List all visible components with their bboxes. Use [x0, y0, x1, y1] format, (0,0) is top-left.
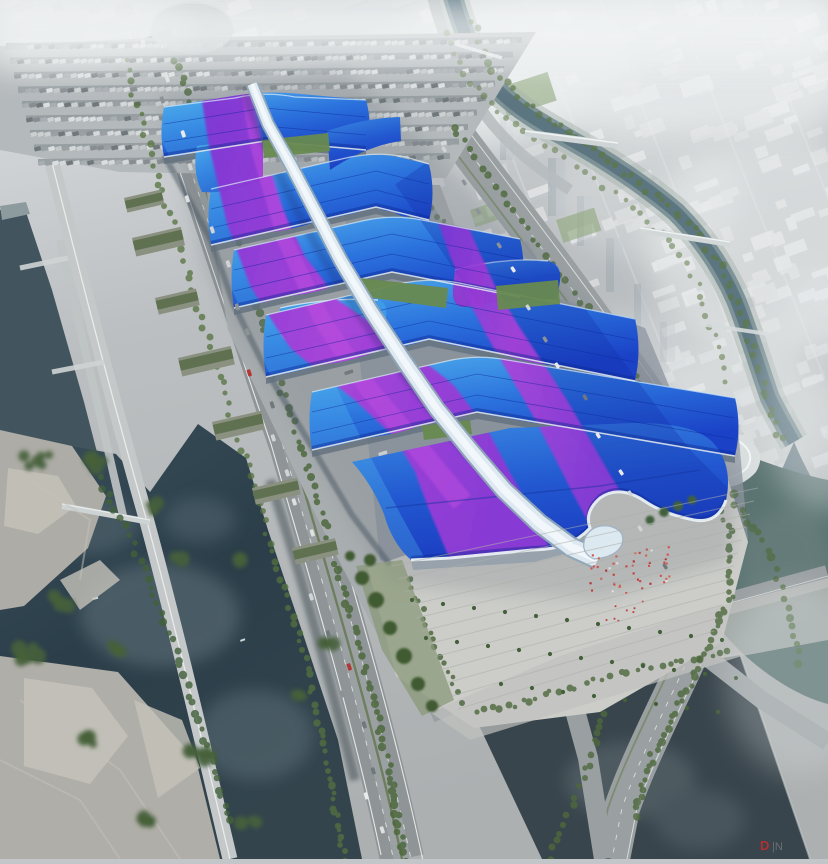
svg-text:D: D: [760, 838, 769, 853]
svg-text:|N: |N: [772, 841, 783, 853]
